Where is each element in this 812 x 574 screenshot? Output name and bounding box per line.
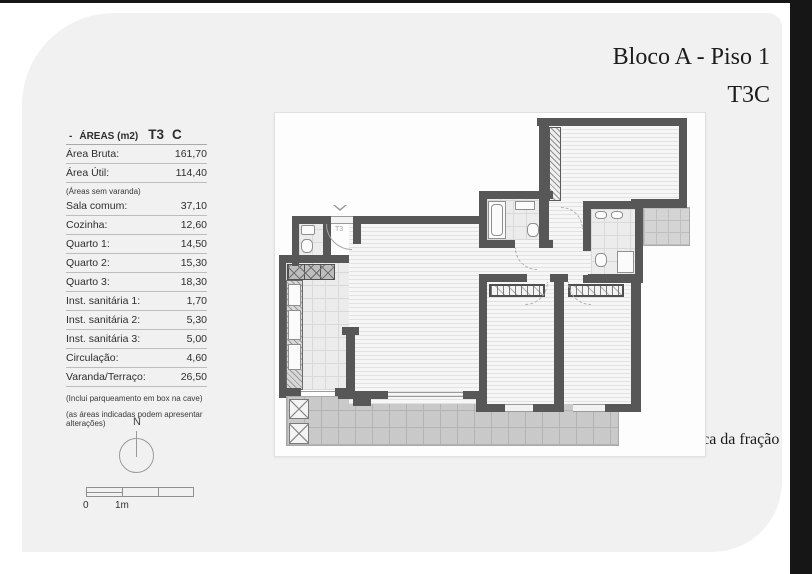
row-value: 18,30 <box>181 276 207 288</box>
toilet <box>301 239 313 253</box>
wall-segment <box>679 118 687 208</box>
bedroom2-floor <box>564 282 631 404</box>
row-value: 12,60 <box>181 219 207 231</box>
row-label: Área Útil: <box>66 167 109 179</box>
row-value: 161,70 <box>175 148 207 160</box>
wall-segment <box>286 388 301 396</box>
kitchen-appliance <box>288 310 301 340</box>
wall-segment <box>605 404 641 412</box>
top-border-bar <box>0 0 812 3</box>
wall-segment <box>346 331 355 393</box>
table-row: Inst. sanitária 3: 5,00 <box>66 330 207 349</box>
scale-meter-label: 1m <box>115 500 129 511</box>
row-value: 5,00 <box>187 333 207 345</box>
row-label: Inst. sanitária 2: <box>66 314 140 326</box>
right-border-bar <box>790 0 812 574</box>
wall-segment <box>554 274 564 412</box>
row-label: Circulação: <box>66 352 119 364</box>
sink <box>595 211 607 219</box>
table-row: Área Útil: 114,40 <box>66 164 207 183</box>
wall-segment <box>479 404 505 412</box>
window-sill <box>301 391 335 392</box>
header-fraction: C <box>172 127 182 142</box>
wall-segment <box>353 216 361 244</box>
header-typology: T3 <box>148 127 164 142</box>
compass-north-label: N <box>130 416 144 428</box>
vent-box <box>289 423 309 444</box>
sink <box>515 201 535 210</box>
window-sill <box>388 392 463 393</box>
page-title: Bloco A - Piso 1 <box>613 38 770 76</box>
row-value: 26,50 <box>181 371 207 383</box>
pillar <box>338 391 388 399</box>
row-label: Varanda/Terraço: <box>66 371 146 383</box>
table-note: (Áreas sem varanda) <box>66 183 207 197</box>
table-row: Circulação: 4,60 <box>66 349 207 368</box>
wall-segment <box>279 255 349 263</box>
bedroom3-wardrobe <box>549 127 561 201</box>
wall-segment <box>479 281 487 412</box>
row-label: Quarto 2: <box>66 257 110 269</box>
page-subtitle: T3C <box>613 76 770 114</box>
bedroom3-floor <box>549 126 679 201</box>
row-value: 14,50 <box>181 238 207 250</box>
scale-subdivision <box>87 492 123 493</box>
entry-marker-icon <box>333 205 347 211</box>
toilet <box>595 253 607 267</box>
row-label: Sala comum: <box>66 200 127 212</box>
row-label: Inst. sanitária 1: <box>66 295 140 307</box>
window-sill <box>388 396 463 397</box>
row-label: Quarto 3: <box>66 276 110 288</box>
row-value: 1,70 <box>187 295 207 307</box>
table-row: Área Bruta: 161,70 <box>66 145 207 164</box>
table-row: Varanda/Terraço: 26,50 <box>66 368 207 387</box>
wall-segment <box>479 191 553 199</box>
scale-bar <box>86 487 194 497</box>
table-row: Cozinha: 12,60 <box>66 216 207 235</box>
table-row: Inst. sanitária 1: 1,70 <box>66 292 207 311</box>
row-label: Área Bruta: <box>66 148 119 160</box>
table-row: Quarto 3: 18,30 <box>66 273 207 292</box>
row-label: Inst. sanitária 3: <box>66 333 140 345</box>
wall-segment <box>479 240 515 248</box>
table-row: Sala comum: 37,10 <box>66 197 207 216</box>
row-value: 4,60 <box>187 352 207 364</box>
row-value: 15,30 <box>181 257 207 269</box>
pillar <box>353 399 371 406</box>
kitchen-counter <box>287 264 335 280</box>
table-footnote: (Inclui parqueamento em box na cave) <box>66 394 207 403</box>
wall-segment <box>631 274 641 412</box>
wall-segment <box>539 240 553 248</box>
row-label: Quarto 1: <box>66 238 110 250</box>
wall-segment <box>533 404 564 412</box>
wall-segment <box>635 201 643 283</box>
entry-label: T3 <box>335 226 343 233</box>
window-opening <box>573 404 605 412</box>
row-value: 5,30 <box>187 314 207 326</box>
compass-icon <box>119 438 154 473</box>
window-opening <box>505 404 533 412</box>
row-label: Cozinha: <box>66 219 107 231</box>
title-block: Bloco A - Piso 1 T3C <box>613 38 770 114</box>
balcony-floor <box>643 207 690 246</box>
toilet <box>527 223 539 237</box>
header-dash: - <box>69 131 72 142</box>
bedroom1-floor <box>487 282 554 404</box>
floor-plan: T3 <box>274 112 706 457</box>
sink <box>301 225 315 235</box>
wall-segment <box>539 118 549 248</box>
sink <box>611 211 623 219</box>
areas-table: - ÁREAS (m2) T3 C Área Bruta: 161,70 Áre… <box>66 127 207 428</box>
row-value: 114,40 <box>176 167 207 179</box>
page: Bloco A - Piso 1 T3C - ÁREAS (m2) T3 C Á… <box>0 0 812 574</box>
scale-divider <box>158 488 159 496</box>
wall-segment <box>479 274 527 282</box>
table-row: Quarto 1: 14,50 <box>66 235 207 254</box>
entry-marker-inner <box>335 205 345 209</box>
wall-segment <box>353 216 479 224</box>
wall-segment <box>537 118 687 126</box>
kitchen-appliance <box>288 344 301 370</box>
areas-table-header: - ÁREAS (m2) T3 C <box>66 127 207 145</box>
table-row: Inst. sanitária 2: 5,30 <box>66 311 207 330</box>
scale-zero-label: 0 <box>83 500 89 511</box>
wall-segment <box>588 274 635 282</box>
bathtub-inner <box>491 204 503 236</box>
vent-box <box>289 399 309 419</box>
wall-segment <box>279 255 286 398</box>
shower <box>617 251 634 273</box>
row-value: 37,10 <box>181 200 207 212</box>
wall-segment <box>583 201 591 251</box>
kitchen-appliance <box>288 284 301 306</box>
header-label: ÁREAS (m2) <box>79 131 138 142</box>
table-row: Quarto 2: 15,30 <box>66 254 207 273</box>
